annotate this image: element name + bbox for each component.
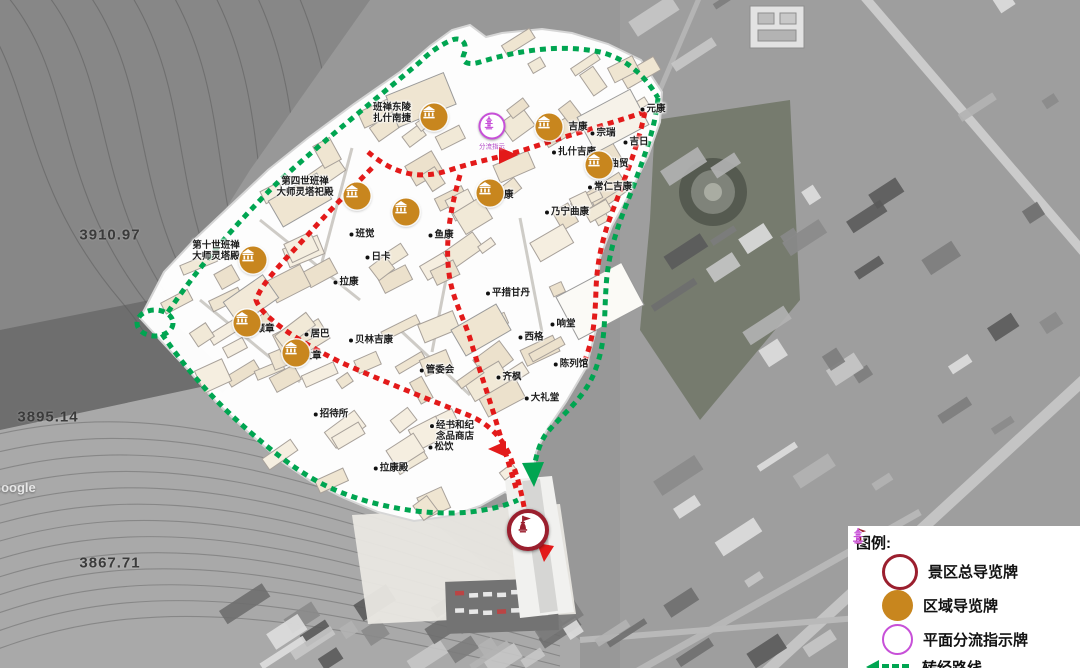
legend-item: 转经路线	[866, 658, 1080, 668]
google-watermark: Google	[0, 480, 36, 495]
split-sign-icon	[882, 624, 913, 655]
legend-title: 图例:	[856, 532, 1080, 553]
kora-route-icon	[866, 660, 912, 668]
legend-item-label: 区域导览牌	[923, 595, 998, 616]
legend-item-label: 景区总导览牌	[928, 561, 1018, 582]
main-sign-icon	[882, 554, 918, 590]
legend-item-label: 转经路线	[922, 657, 982, 668]
legend-item: 平面分流指示牌	[882, 624, 1080, 655]
legend-item-label: 平面分流指示牌	[923, 629, 1028, 650]
area-sign-icon	[882, 590, 913, 621]
map-viewport: 3910.973895.143867.71 班禅东陵 扎什南捷第四世班禅 大师灵…	[0, 0, 1080, 668]
legend-item: 景区总导览牌	[882, 556, 1080, 587]
dash	[882, 664, 889, 668]
arrow-left-icon	[866, 660, 879, 668]
legend-panel: 图例: 景区总导览牌区域导览牌平面分流指示牌转经路线游览路线	[848, 526, 1080, 668]
dash	[892, 664, 899, 668]
legend-item: 区域导览牌	[882, 590, 1080, 621]
dash	[902, 664, 909, 668]
compound	[750, 6, 804, 48]
